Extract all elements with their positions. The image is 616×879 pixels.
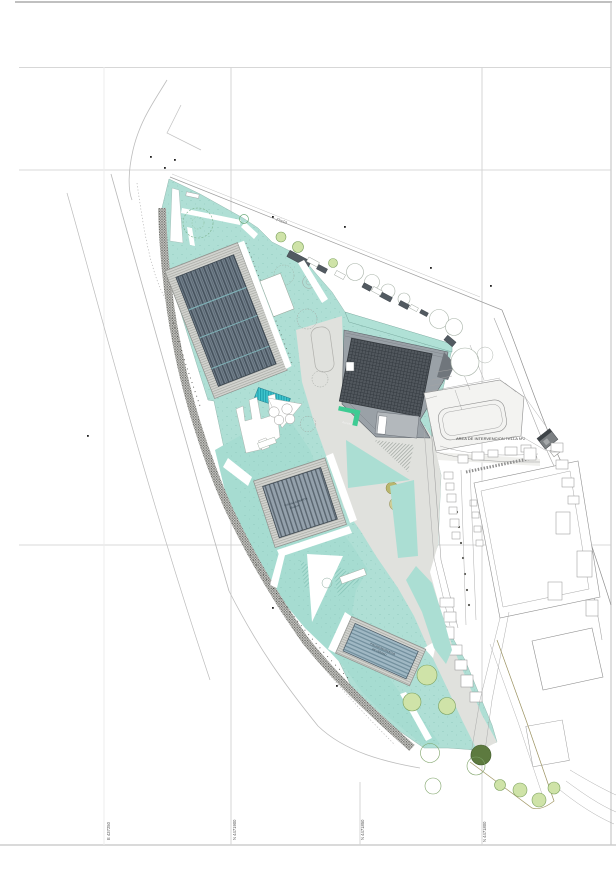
svg-text:AREA DE INTERVENCION TELLA Nº2: AREA DE INTERVENCION TELLA Nº2 <box>456 436 526 441</box>
svg-text:N 4471900: N 4471900 <box>232 819 237 840</box>
svg-text:N 4471800: N 4471800 <box>482 821 487 842</box>
svg-text:N 4471850: N 4471850 <box>360 819 365 840</box>
svg-text:E 437250: E 437250 <box>106 821 111 840</box>
